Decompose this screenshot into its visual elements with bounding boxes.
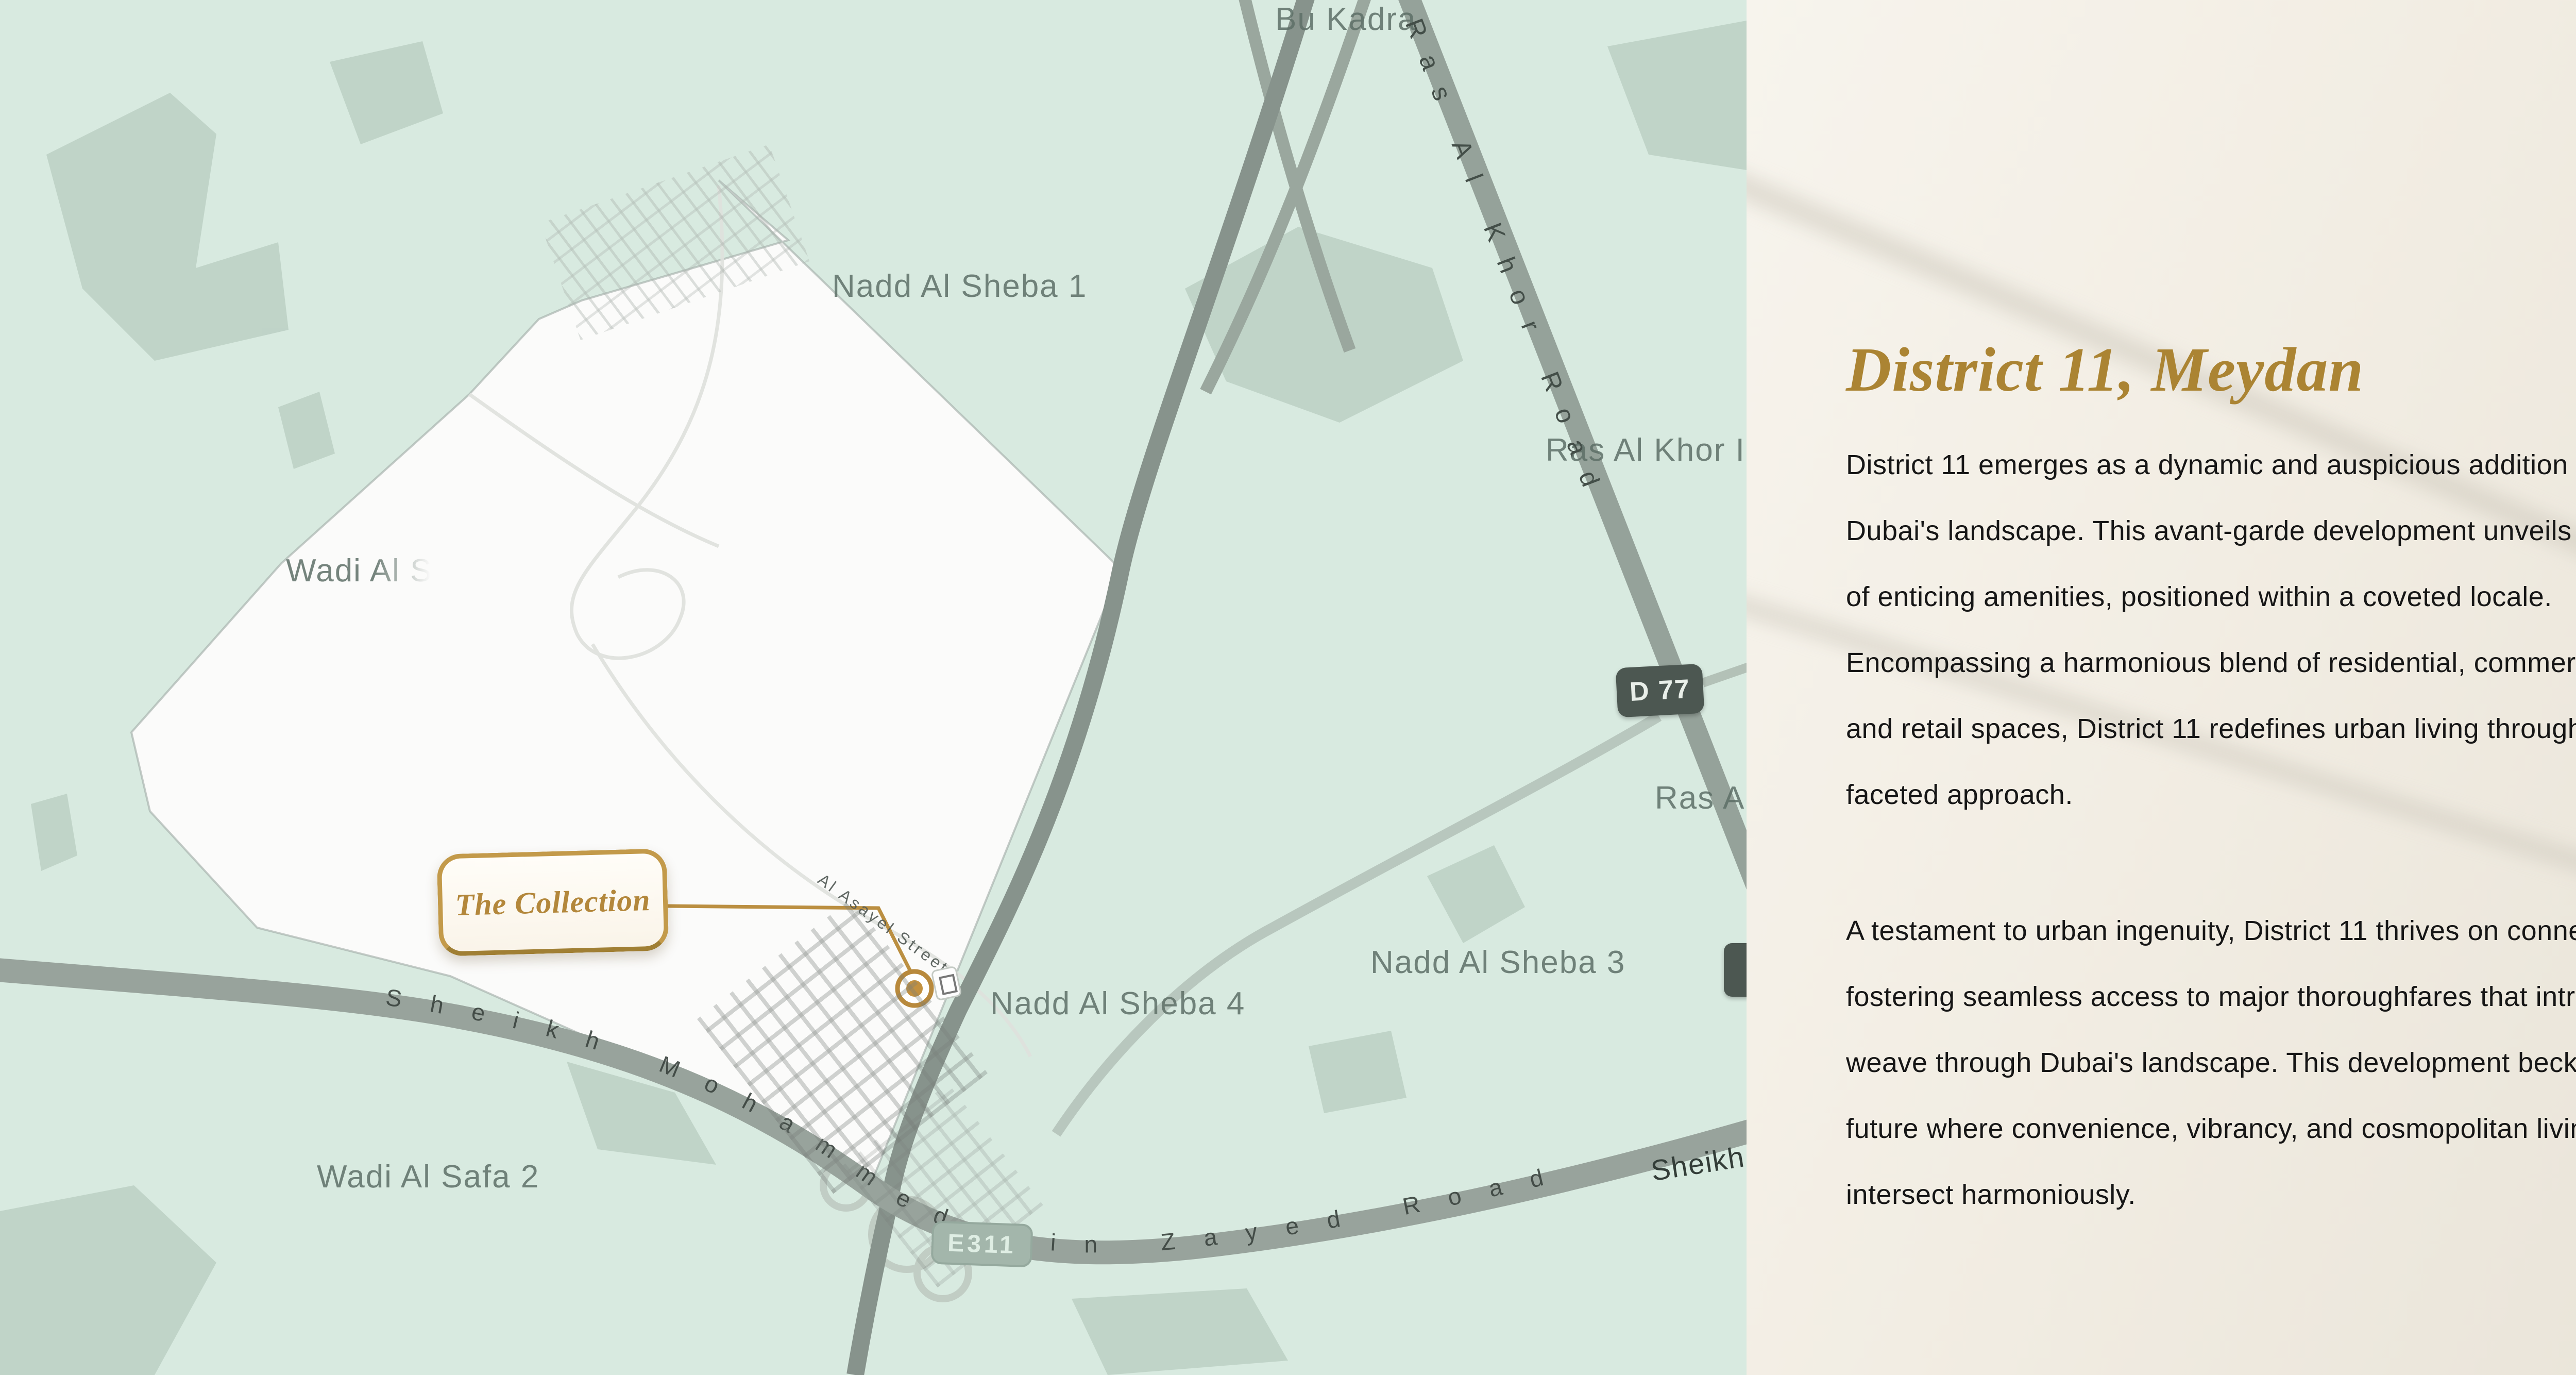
area-label-nadd-al-sheba-3: Nadd Al Sheba 3 — [1370, 944, 1625, 981]
page: Sheikh Mohammed Bin Zayed Road Bu Kadra … — [0, 0, 2576, 1375]
section-title: District 11, Meydan — [1846, 334, 2364, 406]
route-badge-e311: E311 — [931, 1221, 1033, 1268]
description-paragraph-1: District 11 emerges as a dynamic and aus… — [1846, 432, 2576, 828]
area-label-bu-kadra: Bu Kadra — [1275, 1, 1417, 38]
route-badge-clipped — [1724, 943, 1747, 997]
route-badge-d77-text: D 77 — [1629, 674, 1691, 708]
location-map[interactable]: Sheikh Mohammed Bin Zayed Road Bu Kadra … — [0, 0, 1747, 1375]
area-label-ras-a: Ras A — [1655, 780, 1745, 816]
area-label-nadd-al-sheba-4: Nadd Al Sheba 4 — [990, 985, 1245, 1022]
description-paragraph-2: A testament to urban ingenuity, District… — [1846, 898, 2576, 1228]
area-label-wadi-al-safa: Wadi Al S — [286, 552, 430, 589]
route-badge-e311-text: E311 — [947, 1229, 1016, 1260]
route-badge-d77: D 77 — [1616, 664, 1705, 718]
info-panel: District 11, Meydan District 11 emerges … — [1747, 0, 2576, 1375]
area-label-nadd-al-sheba-1: Nadd Al Sheba 1 — [832, 268, 1087, 305]
collection-callout-text: The Collection — [455, 882, 651, 923]
area-label-wadi-al-safa-2: Wadi Al Safa 2 — [317, 1159, 539, 1195]
collection-callout[interactable]: The Collection — [436, 848, 669, 957]
